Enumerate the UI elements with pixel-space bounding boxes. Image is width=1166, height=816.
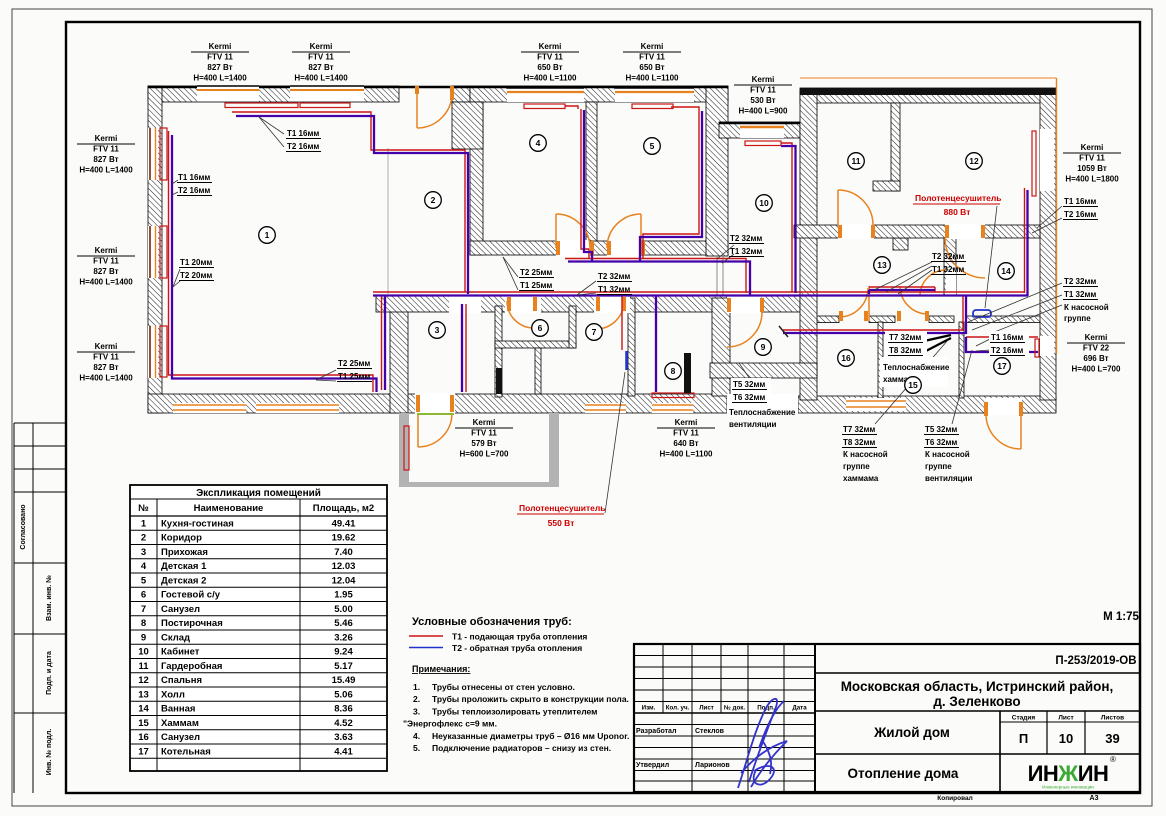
svg-text:Отопление дома: Отопление дома (848, 766, 959, 781)
svg-text:Экспликация помещений: Экспликация помещений (196, 488, 321, 499)
svg-text:827 Вт: 827 Вт (207, 63, 232, 72)
svg-text:Подключение радиаторов – снизу: Подключение радиаторов – снизу из стен. (432, 743, 611, 753)
svg-text:H=400 L=1400: H=400 L=1400 (79, 166, 133, 175)
svg-text:группе: группе (843, 462, 870, 471)
svg-text:4.41: 4.41 (334, 746, 353, 757)
svg-text:17: 17 (138, 746, 149, 757)
svg-text:H=400 L=700: H=400 L=700 (1072, 365, 1121, 374)
svg-text:Подп. и дата: Подп. и дата (46, 651, 53, 695)
svg-text:Т1 16мм: Т1 16мм (1064, 197, 1096, 206)
svg-text:H=400 L=900: H=400 L=900 (739, 107, 788, 116)
svg-text:Т2 25мм: Т2 25мм (520, 268, 552, 277)
svg-text:827 Вт: 827 Вт (93, 363, 118, 372)
svg-text:Kermi: Kermi (1081, 143, 1104, 152)
svg-text:4.: 4. (413, 731, 420, 741)
svg-text:Инженерные инновации: Инженерные инновации (1042, 785, 1094, 790)
svg-text:Примечания:: Примечания: (412, 664, 470, 674)
svg-text:Лист: Лист (699, 705, 714, 712)
svg-text:H=400 L=1100: H=400 L=1100 (524, 74, 577, 83)
svg-text:Разработал: Разработал (636, 727, 676, 735)
svg-text:1: 1 (141, 518, 147, 529)
svg-text:Т1 32мм: Т1 32мм (932, 265, 964, 274)
svg-text:К насосной: К насосной (1064, 303, 1109, 312)
svg-text:Стадия: Стадия (1012, 715, 1036, 722)
svg-text:Т2 32мм: Т2 32мм (598, 272, 630, 281)
svg-text:827 Вт: 827 Вт (93, 267, 118, 276)
svg-text:17: 17 (997, 361, 1007, 371)
svg-text:группе: группе (1064, 314, 1091, 323)
svg-text:12: 12 (138, 675, 149, 686)
svg-text:15: 15 (138, 718, 149, 729)
svg-text:Гардеробная: Гардеробная (161, 661, 222, 672)
svg-text:Хаммам: Хаммам (161, 718, 199, 729)
svg-text:Коридор: Коридор (161, 533, 202, 544)
svg-text:2.: 2. (413, 694, 420, 704)
svg-text:3: 3 (435, 325, 440, 335)
svg-text:Т2 16мм: Т2 16мм (287, 142, 319, 151)
svg-text:А3: А3 (1090, 795, 1099, 802)
svg-text:5.00: 5.00 (334, 604, 353, 615)
svg-text:5: 5 (650, 141, 655, 151)
svg-text:FTV 11: FTV 11 (207, 53, 233, 62)
svg-text:Копировал: Копировал (937, 795, 972, 802)
svg-text:К насосной: К насосной (843, 450, 888, 459)
svg-text:Склад: Склад (161, 632, 190, 643)
svg-text:Полотенцесушитель: Полотенцесушитель (519, 503, 606, 513)
svg-text:13: 13 (877, 260, 887, 270)
svg-text:H=400 L=1400: H=400 L=1400 (79, 374, 133, 383)
svg-text:Условные обозначения труб:: Условные обозначения труб: (412, 616, 572, 628)
svg-text:FTV 11: FTV 11 (1079, 154, 1105, 163)
svg-text:Т1 25мм: Т1 25мм (338, 372, 370, 381)
svg-text:880 Вт: 880 Вт (944, 207, 971, 217)
svg-text:16: 16 (138, 732, 149, 743)
svg-text:H=400 L=1400: H=400 L=1400 (79, 278, 133, 287)
svg-text:Детская 2: Детская 2 (161, 575, 206, 586)
svg-text:7.40: 7.40 (334, 547, 353, 558)
svg-text:5.06: 5.06 (334, 689, 353, 700)
svg-text:№: № (138, 503, 149, 514)
svg-text:H=600 L=700: H=600 L=700 (460, 450, 509, 459)
svg-text:2: 2 (431, 195, 436, 205)
svg-text:Kermi: Kermi (209, 42, 232, 51)
svg-text:10: 10 (1059, 731, 1073, 746)
svg-text:9.24: 9.24 (334, 647, 353, 658)
svg-text:Теплоснабжение: Теплоснабжение (883, 363, 950, 372)
svg-text:Т1 16мм: Т1 16мм (991, 333, 1023, 342)
svg-text:Т1 32мм: Т1 32мм (730, 247, 762, 256)
svg-text:Т5 32мм: Т5 32мм (733, 380, 765, 389)
svg-text:Т2 25мм: Т2 25мм (338, 359, 370, 368)
svg-text:Спальня: Спальня (161, 675, 202, 686)
svg-text:Санузел: Санузел (161, 732, 200, 743)
svg-text:6: 6 (141, 590, 146, 601)
svg-text:H=400 L=1100: H=400 L=1100 (626, 74, 679, 83)
svg-text:Гостевой с/у: Гостевой с/у (161, 590, 221, 601)
svg-text:®: ® (1110, 755, 1116, 764)
svg-text:3.: 3. (413, 706, 420, 716)
svg-text:Т2 32мм: Т2 32мм (932, 252, 964, 261)
svg-text:Московская область, Истринский: Московская область, Истринский район, (841, 679, 1114, 694)
svg-text:827 Вт: 827 Вт (93, 155, 118, 164)
svg-text:Т1 32мм: Т1 32мм (1064, 290, 1096, 299)
svg-text:Т1 25мм: Т1 25мм (520, 281, 552, 290)
svg-text:Прихожая: Прихожая (161, 547, 208, 558)
svg-text:11: 11 (852, 156, 861, 166)
svg-text:827 Вт: 827 Вт (308, 63, 333, 72)
svg-text:Наименование: Наименование (194, 503, 264, 514)
svg-text:FTV 11: FTV 11 (93, 353, 119, 362)
svg-text:Стеклов: Стеклов (695, 728, 725, 735)
svg-text:Полотенцесушитель: Полотенцесушитель (915, 193, 1002, 203)
svg-text:Инв. № подл.: Инв. № подл. (45, 729, 53, 776)
svg-text:Кухня-гостиная: Кухня-гостиная (161, 518, 234, 529)
svg-text:4: 4 (536, 138, 541, 148)
svg-text:FTV 11: FTV 11 (537, 53, 563, 62)
svg-text:1.95: 1.95 (334, 590, 353, 601)
svg-text:Дата: Дата (792, 705, 807, 712)
svg-text:Т8 32мм: Т8 32мм (889, 346, 921, 355)
svg-text:К насосной: К насосной (925, 450, 970, 459)
svg-text:15.49: 15.49 (332, 675, 356, 686)
svg-text:вентиляции: вентиляции (925, 474, 973, 483)
svg-text:Kermi: Kermi (473, 418, 496, 427)
svg-text:H=400 L=1400: H=400 L=1400 (294, 74, 348, 83)
svg-text:H=400 L=1400: H=400 L=1400 (193, 74, 247, 83)
svg-text:650 Вт: 650 Вт (639, 63, 664, 72)
svg-text:Т2 - обратная труба отопления: Т2 - обратная труба отопления (452, 643, 582, 653)
svg-text:Т2 16мм: Т2 16мм (178, 186, 210, 195)
svg-text:Kermi: Kermi (1085, 333, 1108, 342)
svg-text:640 Вт: 640 Вт (673, 439, 698, 448)
svg-text:Kermi: Kermi (95, 246, 118, 255)
svg-text:Т1 - подающая труба отопления: Т1 - подающая труба отопления (452, 632, 587, 642)
svg-text:ИНЖИН: ИНЖИН (1028, 761, 1109, 786)
svg-text:Т2 20мм: Т2 20мм (180, 271, 212, 280)
svg-text:FTV 11: FTV 11 (93, 257, 119, 266)
svg-text:Взам. инв. №: Взам. инв. № (45, 575, 53, 621)
svg-text:9: 9 (141, 632, 146, 643)
svg-text:H=400 L=1100: H=400 L=1100 (660, 450, 713, 459)
svg-text:Неуказанные диаметры труб – Ø1: Неуказанные диаметры труб – Ø16 мм Upono… (432, 731, 629, 741)
svg-text:11: 11 (138, 661, 149, 672)
svg-text:FTV 22: FTV 22 (1083, 344, 1110, 353)
svg-text:4: 4 (141, 561, 147, 572)
svg-text:1: 1 (265, 230, 270, 240)
svg-text:14: 14 (138, 704, 149, 715)
svg-text:1059 Вт: 1059 Вт (1077, 164, 1107, 173)
svg-text:49.41: 49.41 (332, 518, 356, 529)
svg-text:14: 14 (1001, 266, 1011, 276)
svg-text:Т7 32мм: Т7 32мм (843, 425, 875, 434)
svg-text:М 1:75: М 1:75 (1103, 611, 1139, 623)
svg-text:12.03: 12.03 (332, 561, 356, 572)
svg-text:696 Вт: 696 Вт (1083, 354, 1108, 363)
svg-text:579 Вт: 579 Вт (471, 439, 496, 448)
svg-text:Kermi: Kermi (641, 42, 664, 51)
svg-text:Листов: Листов (1101, 715, 1124, 722)
svg-text:Трубы теплоизолировать утеплит: Трубы теплоизолировать утеплителем (432, 706, 597, 716)
svg-text:Т2 32мм: Т2 32мм (730, 234, 762, 243)
svg-text:П: П (1019, 731, 1028, 746)
svg-text:Kermi: Kermi (95, 134, 118, 143)
svg-text:5.: 5. (413, 743, 420, 753)
svg-text:Жилой дом: Жилой дом (873, 725, 950, 740)
svg-text:Согласовано: Согласовано (20, 504, 27, 549)
svg-text:3: 3 (141, 547, 146, 558)
svg-text:530 Вт: 530 Вт (750, 96, 775, 105)
svg-text:"Энергофлекс с=9 мм.: "Энергофлекс с=9 мм. (403, 719, 497, 729)
svg-text:10: 10 (759, 198, 769, 208)
svg-text:39: 39 (1105, 731, 1119, 746)
svg-text:Kermi: Kermi (95, 342, 118, 351)
svg-text:Kermi: Kermi (675, 418, 698, 427)
svg-text:Утвердил: Утвердил (636, 762, 669, 769)
svg-text:Т1 20мм: Т1 20мм (180, 258, 212, 267)
svg-text:7: 7 (592, 327, 597, 337)
svg-text:Т6 32мм: Т6 32мм (925, 438, 957, 447)
svg-text:Кол. уч.: Кол. уч. (666, 705, 690, 712)
svg-text:FTV 11: FTV 11 (471, 429, 497, 438)
svg-text:Изм.: Изм. (642, 705, 656, 712)
svg-text:12: 12 (969, 156, 979, 166)
svg-text:Т1 32мм: Т1 32мм (598, 285, 630, 294)
svg-text:Лист: Лист (1058, 715, 1073, 722)
svg-text:5.17: 5.17 (334, 661, 353, 672)
svg-text:Постирочная: Постирочная (161, 618, 223, 629)
svg-text:Т7 32мм: Т7 32мм (889, 333, 921, 342)
svg-text:19.62: 19.62 (332, 533, 356, 544)
svg-text:6: 6 (538, 323, 543, 333)
svg-text:Площадь, м2: Площадь, м2 (313, 503, 374, 514)
svg-text:Т2 16мм: Т2 16мм (1064, 210, 1096, 219)
svg-text:Т5 32мм: Т5 32мм (925, 425, 957, 434)
svg-text:вентиляции: вентиляции (729, 420, 777, 429)
svg-text:Трубы отнесены от стен условно: Трубы отнесены от стен условно. (432, 682, 575, 692)
svg-text:650 Вт: 650 Вт (537, 63, 562, 72)
svg-text:Ларионов: Ларионов (695, 762, 730, 769)
svg-text:№ док.: № док. (724, 705, 745, 712)
svg-text:FTV 11: FTV 11 (93, 145, 119, 154)
svg-text:8: 8 (671, 366, 676, 376)
svg-text:Т2 32мм: Т2 32мм (1064, 277, 1096, 286)
svg-text:д. Зеленково: д. Зеленково (933, 694, 1020, 709)
svg-text:Санузел: Санузел (161, 604, 200, 615)
svg-text:5.46: 5.46 (334, 618, 353, 629)
svg-text:7: 7 (141, 604, 146, 615)
svg-text:8.36: 8.36 (334, 704, 353, 715)
svg-text:Трубы проложить скрыто в конст: Трубы проложить скрыто в конструкции пол… (432, 694, 629, 704)
svg-text:Котельная: Котельная (161, 746, 211, 757)
svg-text:2: 2 (141, 533, 146, 544)
svg-text:15: 15 (908, 380, 918, 390)
svg-text:Холл: Холл (161, 689, 185, 700)
svg-text:Т2 16мм: Т2 16мм (991, 346, 1023, 355)
svg-text:5: 5 (141, 575, 147, 586)
svg-text:группе: группе (925, 462, 952, 471)
svg-text:3.63: 3.63 (334, 732, 353, 743)
svg-text:13: 13 (138, 689, 149, 700)
svg-text:FTV 11: FTV 11 (308, 53, 334, 62)
svg-text:Т1 16мм: Т1 16мм (287, 129, 319, 138)
svg-text:Теплоснабжение: Теплоснабжение (729, 408, 796, 417)
svg-text:4.52: 4.52 (334, 718, 353, 729)
svg-text:П-253/2019-ОВ: П-253/2019-ОВ (1055, 655, 1136, 667)
svg-text:Т1 16мм: Т1 16мм (178, 173, 210, 182)
svg-text:550 Вт: 550 Вт (548, 518, 575, 528)
svg-text:Kermi: Kermi (539, 42, 562, 51)
svg-text:10: 10 (138, 647, 149, 658)
svg-text:16: 16 (841, 353, 851, 363)
svg-text:Т8 32мм: Т8 32мм (843, 438, 875, 447)
svg-text:Детская 1: Детская 1 (161, 561, 207, 572)
svg-text:3.26: 3.26 (334, 632, 353, 643)
svg-text:12.04: 12.04 (332, 575, 356, 586)
svg-text:хаммама: хаммама (843, 474, 879, 483)
svg-text:FTV 11: FTV 11 (639, 53, 665, 62)
svg-text:9: 9 (761, 342, 766, 352)
svg-text:Т6 32мм: Т6 32мм (733, 393, 765, 402)
svg-text:8: 8 (141, 618, 146, 629)
svg-text:Kermi: Kermi (310, 42, 333, 51)
svg-text:H=400 L=1800: H=400 L=1800 (1065, 175, 1119, 184)
svg-text:Kermi: Kermi (752, 75, 775, 84)
svg-text:1.: 1. (413, 682, 420, 692)
svg-text:Ванная: Ванная (161, 704, 195, 715)
svg-text:FTV 11: FTV 11 (750, 86, 776, 95)
svg-text:FTV 11: FTV 11 (673, 429, 699, 438)
svg-text:Кабинет: Кабинет (161, 647, 200, 658)
